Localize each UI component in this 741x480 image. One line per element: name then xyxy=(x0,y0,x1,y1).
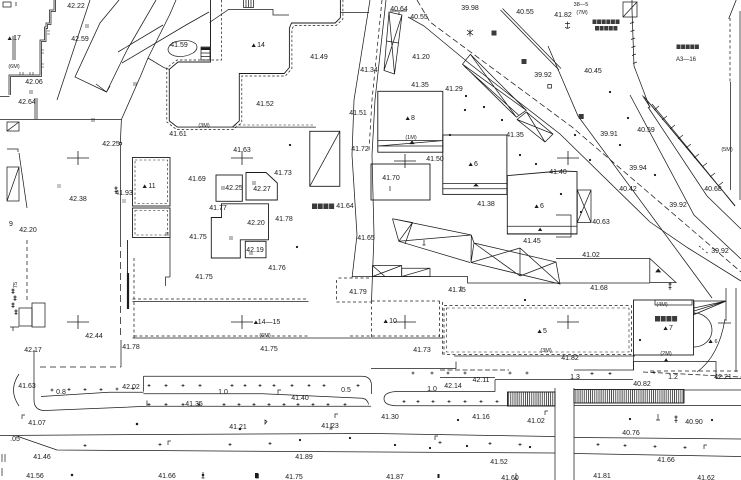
svg-text:40.64: 40.64 xyxy=(390,6,408,13)
svg-text:14—15: 14—15 xyxy=(258,319,281,326)
svg-text:42.02: 42.02 xyxy=(122,384,140,391)
svg-text:40.76: 40.76 xyxy=(622,430,640,437)
svg-text:6: 6 xyxy=(714,339,717,345)
svg-text:41.87: 41.87 xyxy=(386,474,404,480)
svg-text:41.02: 41.02 xyxy=(582,252,600,259)
svg-text:42.25: 42.25 xyxy=(225,185,243,192)
svg-text:7: 7 xyxy=(669,325,673,332)
svg-text:41.16: 41.16 xyxy=(472,414,490,421)
svg-text:(4M): (4M) xyxy=(656,302,667,308)
svg-text:41.62: 41.62 xyxy=(697,475,715,480)
svg-text:41.78: 41.78 xyxy=(122,344,140,351)
svg-text:41.75: 41.75 xyxy=(260,346,278,353)
svg-text:41.50: 41.50 xyxy=(426,156,444,163)
svg-text:42.20: 42.20 xyxy=(247,220,265,227)
svg-text:41.02: 41.02 xyxy=(527,418,545,425)
svg-text:39.92: 39.92 xyxy=(534,72,552,79)
svg-text:40.55: 40.55 xyxy=(516,9,534,16)
svg-text:42.21: 42.21 xyxy=(714,374,732,381)
svg-text:17: 17 xyxy=(13,35,21,42)
svg-text:41.70: 41.70 xyxy=(382,175,400,182)
svg-text:1.3: 1.3 xyxy=(570,374,580,381)
svg-text:42.22: 42.22 xyxy=(67,3,85,10)
svg-text:(3M): (3M) xyxy=(198,123,209,129)
svg-text:41.07: 41.07 xyxy=(28,420,46,427)
svg-text:41.89: 41.89 xyxy=(295,454,313,461)
svg-text:41.82: 41.82 xyxy=(554,12,572,19)
svg-text:41.78: 41.78 xyxy=(275,216,293,223)
svg-text:(2M): (2M) xyxy=(660,351,671,357)
svg-text:39.92: 39.92 xyxy=(711,248,729,255)
svg-text:14: 14 xyxy=(257,42,265,49)
svg-text:1.0: 1.0 xyxy=(427,386,437,393)
svg-text:41.68: 41.68 xyxy=(590,285,608,292)
svg-text:42.64: 42.64 xyxy=(18,99,36,106)
svg-text:41.45: 41.45 xyxy=(523,238,541,245)
svg-text:A3—16: A3—16 xyxy=(676,57,697,63)
svg-text:40.42: 40.42 xyxy=(619,186,637,193)
svg-text:41.64: 41.64 xyxy=(336,203,354,210)
svg-text:40.59: 40.59 xyxy=(637,127,655,134)
svg-text:40.68: 40.68 xyxy=(704,186,722,193)
svg-text:41.51: 41.51 xyxy=(349,110,367,117)
svg-text:41.73: 41.73 xyxy=(413,347,431,354)
svg-text:41.35: 41.35 xyxy=(411,82,429,89)
svg-text:41.75: 41.75 xyxy=(285,474,303,480)
svg-text:41.75: 41.75 xyxy=(195,274,213,281)
svg-text:41.75: 41.75 xyxy=(189,234,207,241)
svg-text:42.20: 42.20 xyxy=(19,227,37,234)
svg-text:41.63: 41.63 xyxy=(18,383,36,390)
svg-text:38—5: 38—5 xyxy=(574,2,589,8)
svg-text:.05: .05 xyxy=(10,436,20,443)
svg-text:41.38: 41.38 xyxy=(477,201,495,208)
svg-text:42.14: 42.14 xyxy=(444,383,462,390)
svg-text:41.63: 41.63 xyxy=(233,147,251,154)
svg-text:6: 6 xyxy=(474,161,478,168)
svg-text:(6M): (6M) xyxy=(8,64,19,70)
svg-text:42.38: 42.38 xyxy=(69,196,87,203)
svg-text:42.06: 42.06 xyxy=(25,79,43,86)
svg-text:41.66: 41.66 xyxy=(158,473,176,480)
svg-text:5: 5 xyxy=(543,328,547,335)
svg-text:42.19: 42.19 xyxy=(246,247,264,254)
svg-text:75: 75 xyxy=(13,282,19,288)
svg-text:42.59: 42.59 xyxy=(71,36,89,43)
svg-text:41.69: 41.69 xyxy=(188,176,206,183)
svg-text:(3M): (3M) xyxy=(540,348,551,354)
svg-text:(1M): (1M) xyxy=(405,135,416,141)
svg-text:41.79: 41.79 xyxy=(349,289,367,296)
svg-text:41.52: 41.52 xyxy=(256,101,274,108)
svg-text:11: 11 xyxy=(148,183,155,190)
svg-text:40.82: 40.82 xyxy=(633,381,651,388)
svg-text:40.63: 40.63 xyxy=(592,219,610,226)
svg-text:41.81: 41.81 xyxy=(593,473,611,480)
svg-text:39.91: 39.91 xyxy=(600,131,618,138)
svg-text:41.52: 41.52 xyxy=(490,459,508,466)
svg-text:41.75: 41.75 xyxy=(448,287,466,294)
svg-text:9: 9 xyxy=(9,221,13,228)
svg-text:41.35: 41.35 xyxy=(506,132,524,139)
svg-text:(7M): (7M) xyxy=(576,10,587,16)
svg-text:39.98: 39.98 xyxy=(461,5,479,12)
svg-text:41.93: 41.93 xyxy=(115,190,133,197)
svg-text:41.40: 41.40 xyxy=(291,395,309,402)
svg-text:41.46: 41.46 xyxy=(33,454,51,461)
svg-text:41.77: 41.77 xyxy=(209,205,227,212)
svg-text:42.27: 42.27 xyxy=(253,186,271,193)
svg-text:6: 6 xyxy=(540,203,544,210)
svg-text:(5M): (5M) xyxy=(721,147,732,153)
svg-text:42.25: 42.25 xyxy=(102,141,120,148)
svg-text:41.72: 41.72 xyxy=(351,146,369,153)
svg-text:41.35: 41.35 xyxy=(185,401,203,408)
svg-text:41.29: 41.29 xyxy=(445,86,463,93)
svg-text:10: 10 xyxy=(389,318,397,325)
svg-text:41.21: 41.21 xyxy=(229,424,247,431)
svg-text:41.66: 41.66 xyxy=(657,457,675,464)
svg-text:41.49: 41.49 xyxy=(310,54,328,61)
svg-text:42.44: 42.44 xyxy=(85,333,103,340)
svg-text:1.2: 1.2 xyxy=(668,374,678,381)
svg-text:41.82: 41.82 xyxy=(561,355,579,362)
svg-text:42.17: 42.17 xyxy=(24,347,42,354)
svg-text:0.5: 0.5 xyxy=(341,387,351,394)
svg-text:41.23: 41.23 xyxy=(321,423,339,430)
svg-text:41.76: 41.76 xyxy=(268,265,286,272)
svg-text:42.11: 42.11 xyxy=(473,377,490,384)
svg-text:41.59: 41.59 xyxy=(170,42,188,49)
svg-text:41.73: 41.73 xyxy=(274,170,292,177)
svg-text:41.60: 41.60 xyxy=(501,475,519,480)
svg-text:1.0: 1.0 xyxy=(218,389,228,396)
svg-text:41.30: 41.30 xyxy=(381,414,399,421)
svg-text:41.56: 41.56 xyxy=(26,473,44,480)
svg-text:(6M): (6M) xyxy=(259,333,270,339)
svg-text:39.92: 39.92 xyxy=(669,202,687,209)
svg-text:0.8: 0.8 xyxy=(56,389,66,396)
svg-text:40.45: 40.45 xyxy=(584,68,602,75)
svg-text:39.94: 39.94 xyxy=(629,165,647,172)
svg-text:41.65: 41.65 xyxy=(357,235,375,242)
svg-text:8: 8 xyxy=(411,115,415,122)
svg-text:41.40: 41.40 xyxy=(549,169,567,176)
svg-text:41.61: 41.61 xyxy=(169,131,187,138)
svg-text:41.34: 41.34 xyxy=(360,67,378,74)
svg-text:41.20: 41.20 xyxy=(412,54,430,61)
svg-text:40.90: 40.90 xyxy=(685,419,703,426)
svg-text:40.55: 40.55 xyxy=(410,14,428,21)
